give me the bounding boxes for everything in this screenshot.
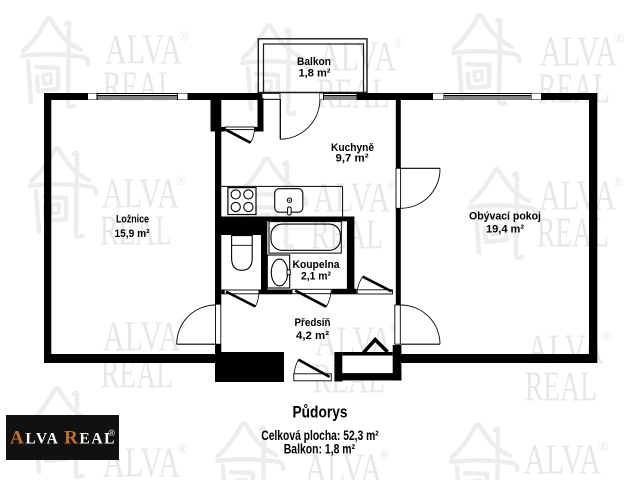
svg-text:Půdorys: Půdorys: [293, 404, 348, 422]
svg-text:Balkon: 1,8 m²: Balkon: 1,8 m²: [284, 441, 356, 456]
svg-text:Balkon: Balkon: [297, 56, 331, 68]
svg-text:ALVA REAL: ALVA REAL: [10, 428, 116, 449]
svg-text:Předsíň: Předsíň: [295, 317, 331, 329]
svg-text:1,8 m²: 1,8 m²: [299, 68, 331, 80]
svg-text:4,2 m²: 4,2 m²: [296, 330, 329, 342]
svg-text:Obývací pokoj: Obývací pokoj: [469, 210, 541, 222]
svg-text:2,1 m²: 2,1 m²: [301, 270, 331, 282]
svg-text:15,9 m²: 15,9 m²: [115, 228, 150, 240]
svg-text:Koupelna: Koupelna: [293, 259, 341, 271]
svg-text:9,7 m²: 9,7 m²: [336, 153, 369, 165]
svg-text:®: ®: [108, 428, 115, 439]
svg-text:Ložnice: Ložnice: [116, 213, 149, 225]
svg-text:19,4 m²: 19,4 m²: [486, 224, 524, 236]
